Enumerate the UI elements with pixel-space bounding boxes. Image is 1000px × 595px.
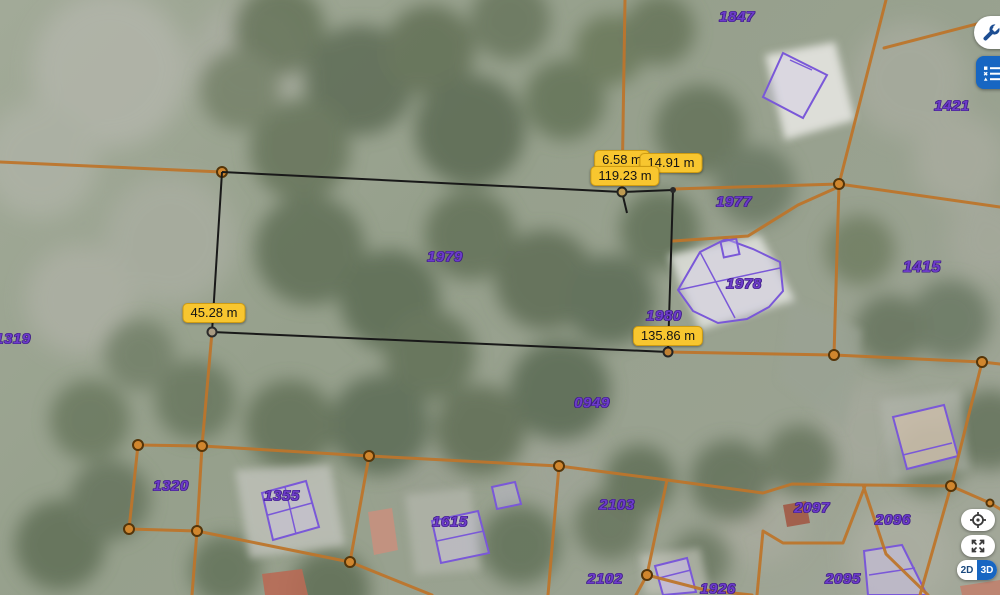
wrench-icon	[981, 23, 1000, 43]
measure-label-119-23[interactable]: 119.23 m	[590, 166, 659, 186]
map-mode-toggle[interactable]: 2D 3D	[957, 560, 997, 580]
tools-button[interactable]	[974, 16, 1000, 49]
parcel-label-1320: 1320	[153, 478, 189, 495]
locate-crosshair-icon	[969, 511, 987, 529]
parcel-label-2097: 2097	[794, 500, 830, 517]
measure-label-45-28[interactable]: 45.28 m	[183, 303, 246, 323]
locate-button[interactable]	[961, 509, 995, 531]
parcel-label-1977: 1977	[716, 194, 752, 211]
mode-3d-button[interactable]: 3D	[977, 560, 997, 580]
expand-arrows-icon	[969, 537, 987, 555]
parcel-label-1615: 1615	[432, 514, 468, 531]
parcel-label-1926: 1926	[700, 581, 736, 595]
parcel-label-1421: 1421	[934, 98, 970, 115]
parcel-label-1978: 1978	[726, 276, 762, 293]
map-canvas[interactable]: 1847 1421 1977 1415 1979 1978 1980 1319 …	[0, 0, 1000, 595]
parcel-label-2102: 2102	[587, 571, 623, 588]
parcel-label-1415: 1415	[903, 259, 941, 277]
parcel-label-0949: 0949	[574, 395, 610, 412]
map-overlay	[0, 0, 1000, 595]
parcel-label-2103: 2103	[599, 497, 635, 514]
parcel-label-2095: 2095	[825, 571, 861, 588]
fullscreen-button[interactable]	[961, 535, 995, 557]
mode-2d-button[interactable]: 2D	[957, 560, 977, 580]
parcel-label-1355: 1355	[264, 488, 300, 505]
legend-button[interactable]	[976, 56, 1000, 89]
measure-label-135-86[interactable]: 135.86 m	[633, 326, 703, 346]
parcel-label-1319: 1319	[0, 331, 31, 348]
parcel-label-1980: 1980	[646, 308, 682, 325]
parcel-label-2096: 2096	[875, 512, 911, 529]
parcel-label-1979: 1979	[427, 249, 463, 266]
parcel-label-1847: 1847	[719, 9, 755, 26]
layer-list-icon	[981, 62, 1000, 84]
